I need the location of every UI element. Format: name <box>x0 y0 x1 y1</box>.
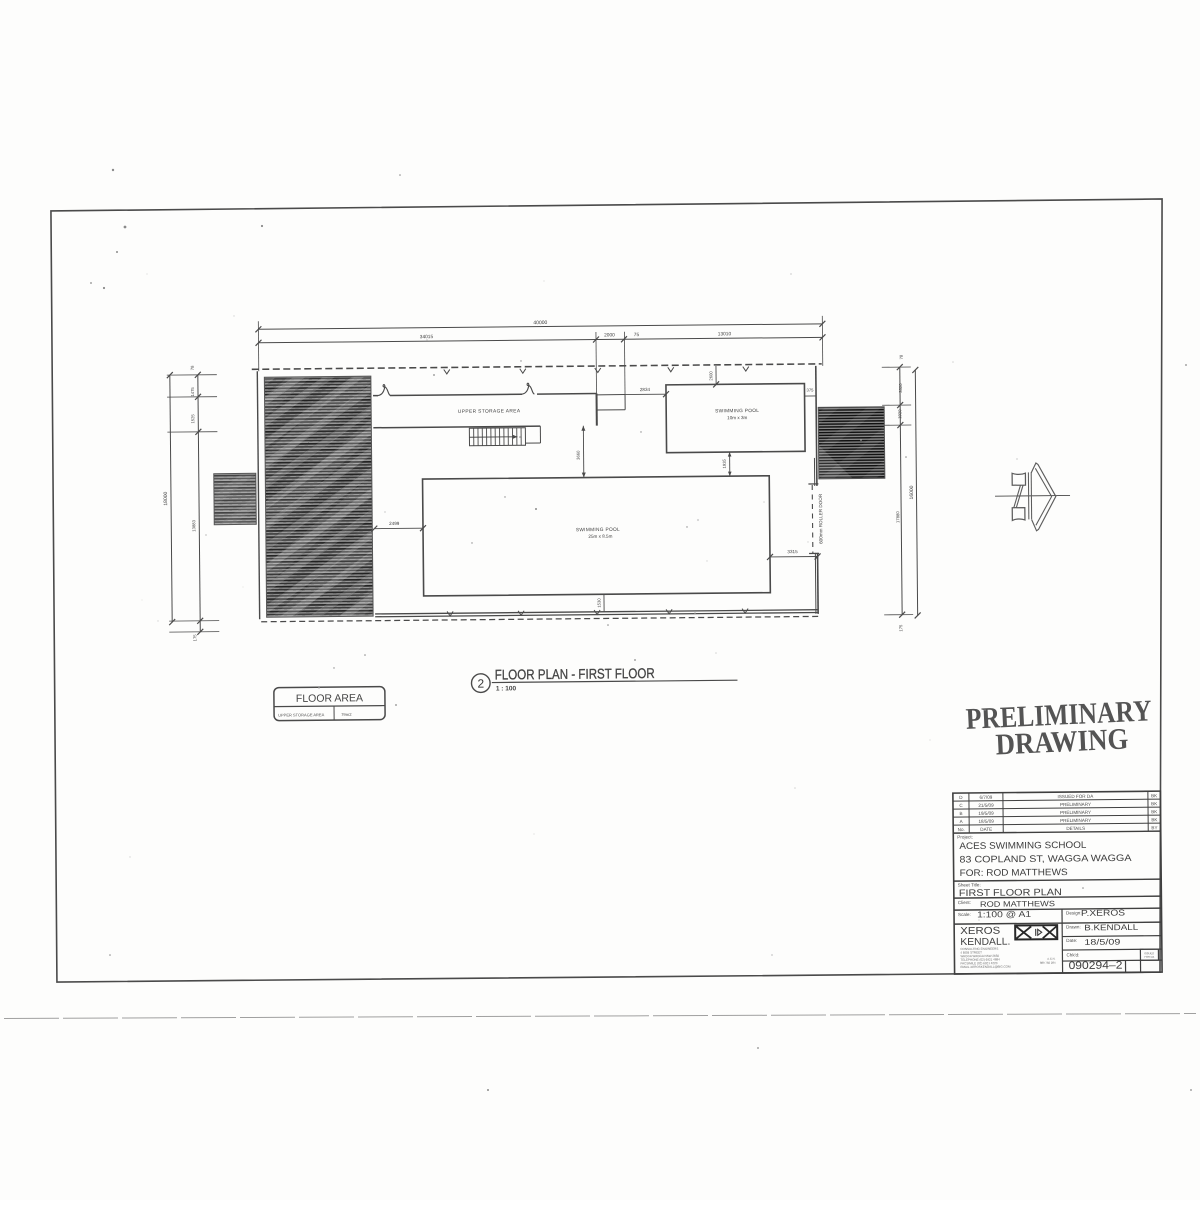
svg-text:Client:: Client: <box>958 900 971 905</box>
svg-text:175: 175 <box>192 634 197 642</box>
svg-text:FOR DA: FOR DA <box>1144 955 1154 959</box>
svg-text:UPPER STORAGE AREA: UPPER STORAGE AREA <box>278 712 325 717</box>
svg-text:3315: 3315 <box>787 549 798 554</box>
svg-text:600mm ROLLER DOOR: 600mm ROLLER DOOR <box>818 493 823 544</box>
svg-text:Design:: Design: <box>1066 910 1082 915</box>
svg-text:25m x 8.5m: 25m x 8.5m <box>588 534 612 539</box>
svg-text:78: 78 <box>899 354 904 359</box>
svg-text:40000: 40000 <box>533 320 547 326</box>
svg-text:17880: 17880 <box>895 511 900 523</box>
svg-text:175: 175 <box>898 624 903 632</box>
svg-text:2: 2 <box>477 677 484 691</box>
svg-text:090294–2: 090294–2 <box>1068 960 1122 973</box>
svg-text:13010: 13010 <box>718 331 732 337</box>
svg-text:ISSUED FOR DA: ISSUED FOR DA <box>1058 794 1095 799</box>
svg-text:1935: 1935 <box>722 458 727 468</box>
svg-text:2000: 2000 <box>604 332 615 338</box>
svg-text:Project:: Project: <box>957 834 973 839</box>
svg-text:XEROS: XEROS <box>960 926 1000 937</box>
svg-text:FOR: ROD MATTHEWS: FOR: ROD MATTHEWS <box>960 866 1068 878</box>
svg-text:19/5/09: 19/5/09 <box>978 811 994 816</box>
svg-text:B.KENDALL: B.KENDALL <box>1084 923 1139 933</box>
svg-text:78: 78 <box>190 365 195 370</box>
svg-text:79m2: 79m2 <box>341 712 352 717</box>
svg-text:Scale:: Scale: <box>958 912 971 917</box>
svg-text:16000: 16000 <box>909 485 915 499</box>
svg-text:EMAIL XEROSKENDALL@BIG.COM: EMAIL XEROSKENDALL@BIG.COM <box>961 965 1011 969</box>
svg-text:6/7/09: 6/7/09 <box>979 795 992 800</box>
svg-text:10m x 3m: 10m x 3m <box>727 415 747 420</box>
svg-text:FLOOR PLAN - FIRST FLOOR: FLOOR PLAN - FIRST FLOOR <box>495 665 655 683</box>
svg-text:Sheet Title:: Sheet Title: <box>958 882 981 887</box>
svg-text:18/5/09: 18/5/09 <box>1084 938 1121 947</box>
svg-text:2834: 2834 <box>640 387 651 392</box>
svg-text:BY: BY <box>1151 825 1157 830</box>
svg-text:SWIMMING POOL: SWIMMING POOL <box>576 527 620 533</box>
svg-text:1530: 1530 <box>596 598 601 608</box>
svg-text:3520: 3520 <box>898 383 903 393</box>
svg-text:ROD MATTHEWS: ROD MATTHEWS <box>980 899 1055 909</box>
svg-text:UPPER STORAGE AREA: UPPER STORAGE AREA <box>458 408 521 415</box>
svg-text:BK: BK <box>1151 809 1158 814</box>
svg-text:83 COPLAND ST, WAGGA WAGGA: 83 COPLAND ST, WAGGA WAGGA <box>959 852 1132 865</box>
svg-text:18000: 18000 <box>163 491 169 505</box>
svg-text:2499: 2499 <box>389 521 400 526</box>
svg-text:ACES SWIMMING SCHOOL: ACES SWIMMING SCHOOL <box>959 839 1086 851</box>
svg-text:DETAILS: DETAILS <box>1066 826 1085 831</box>
svg-text:1 : 100: 1 : 100 <box>496 685 517 692</box>
svg-text:2600: 2600 <box>708 371 713 381</box>
svg-text:18/5/09: 18/5/09 <box>978 819 994 824</box>
svg-text:SWIMMING POOL: SWIMMING POOL <box>715 408 759 414</box>
svg-text:889 782 284: 889 782 284 <box>1040 961 1056 965</box>
svg-text:PRELIMINARY: PRELIMINARY <box>1060 818 1091 823</box>
svg-text:1:100 @ A1: 1:100 @ A1 <box>977 909 1031 920</box>
svg-text:DATE: DATE <box>980 827 992 832</box>
svg-text:FLOOR AREA: FLOOR AREA <box>296 692 363 705</box>
svg-text:P.XEROS: P.XEROS <box>1081 907 1125 917</box>
svg-text:PRELIMINARY: PRELIMINARY <box>1060 802 1091 807</box>
svg-text:Chk'd:: Chk'd: <box>1066 952 1079 957</box>
svg-text:1475: 1475 <box>190 387 195 397</box>
svg-text:75: 75 <box>634 332 640 338</box>
svg-text:DRAWING: DRAWING <box>995 722 1129 761</box>
svg-text:Drawn:: Drawn: <box>1066 924 1081 929</box>
svg-text:BK: BK <box>1151 793 1158 798</box>
svg-text:13883: 13883 <box>191 519 196 531</box>
svg-text:No.: No. <box>958 827 965 832</box>
svg-text:375: 375 <box>806 387 814 392</box>
svg-text:ISSUED: ISSUED <box>1144 951 1154 955</box>
svg-text:1920: 1920 <box>897 409 902 419</box>
svg-text:21/5/09: 21/5/09 <box>978 803 994 808</box>
svg-text:BK: BK <box>1151 801 1158 806</box>
svg-text:BK: BK <box>1151 817 1158 822</box>
svg-text:B: B <box>960 811 963 816</box>
svg-text:PRELIMINARY: PRELIMINARY <box>1060 810 1091 815</box>
svg-text:3660: 3660 <box>576 450 581 460</box>
svg-text:Date:: Date: <box>1066 938 1077 943</box>
svg-text:1525: 1525 <box>190 414 195 424</box>
